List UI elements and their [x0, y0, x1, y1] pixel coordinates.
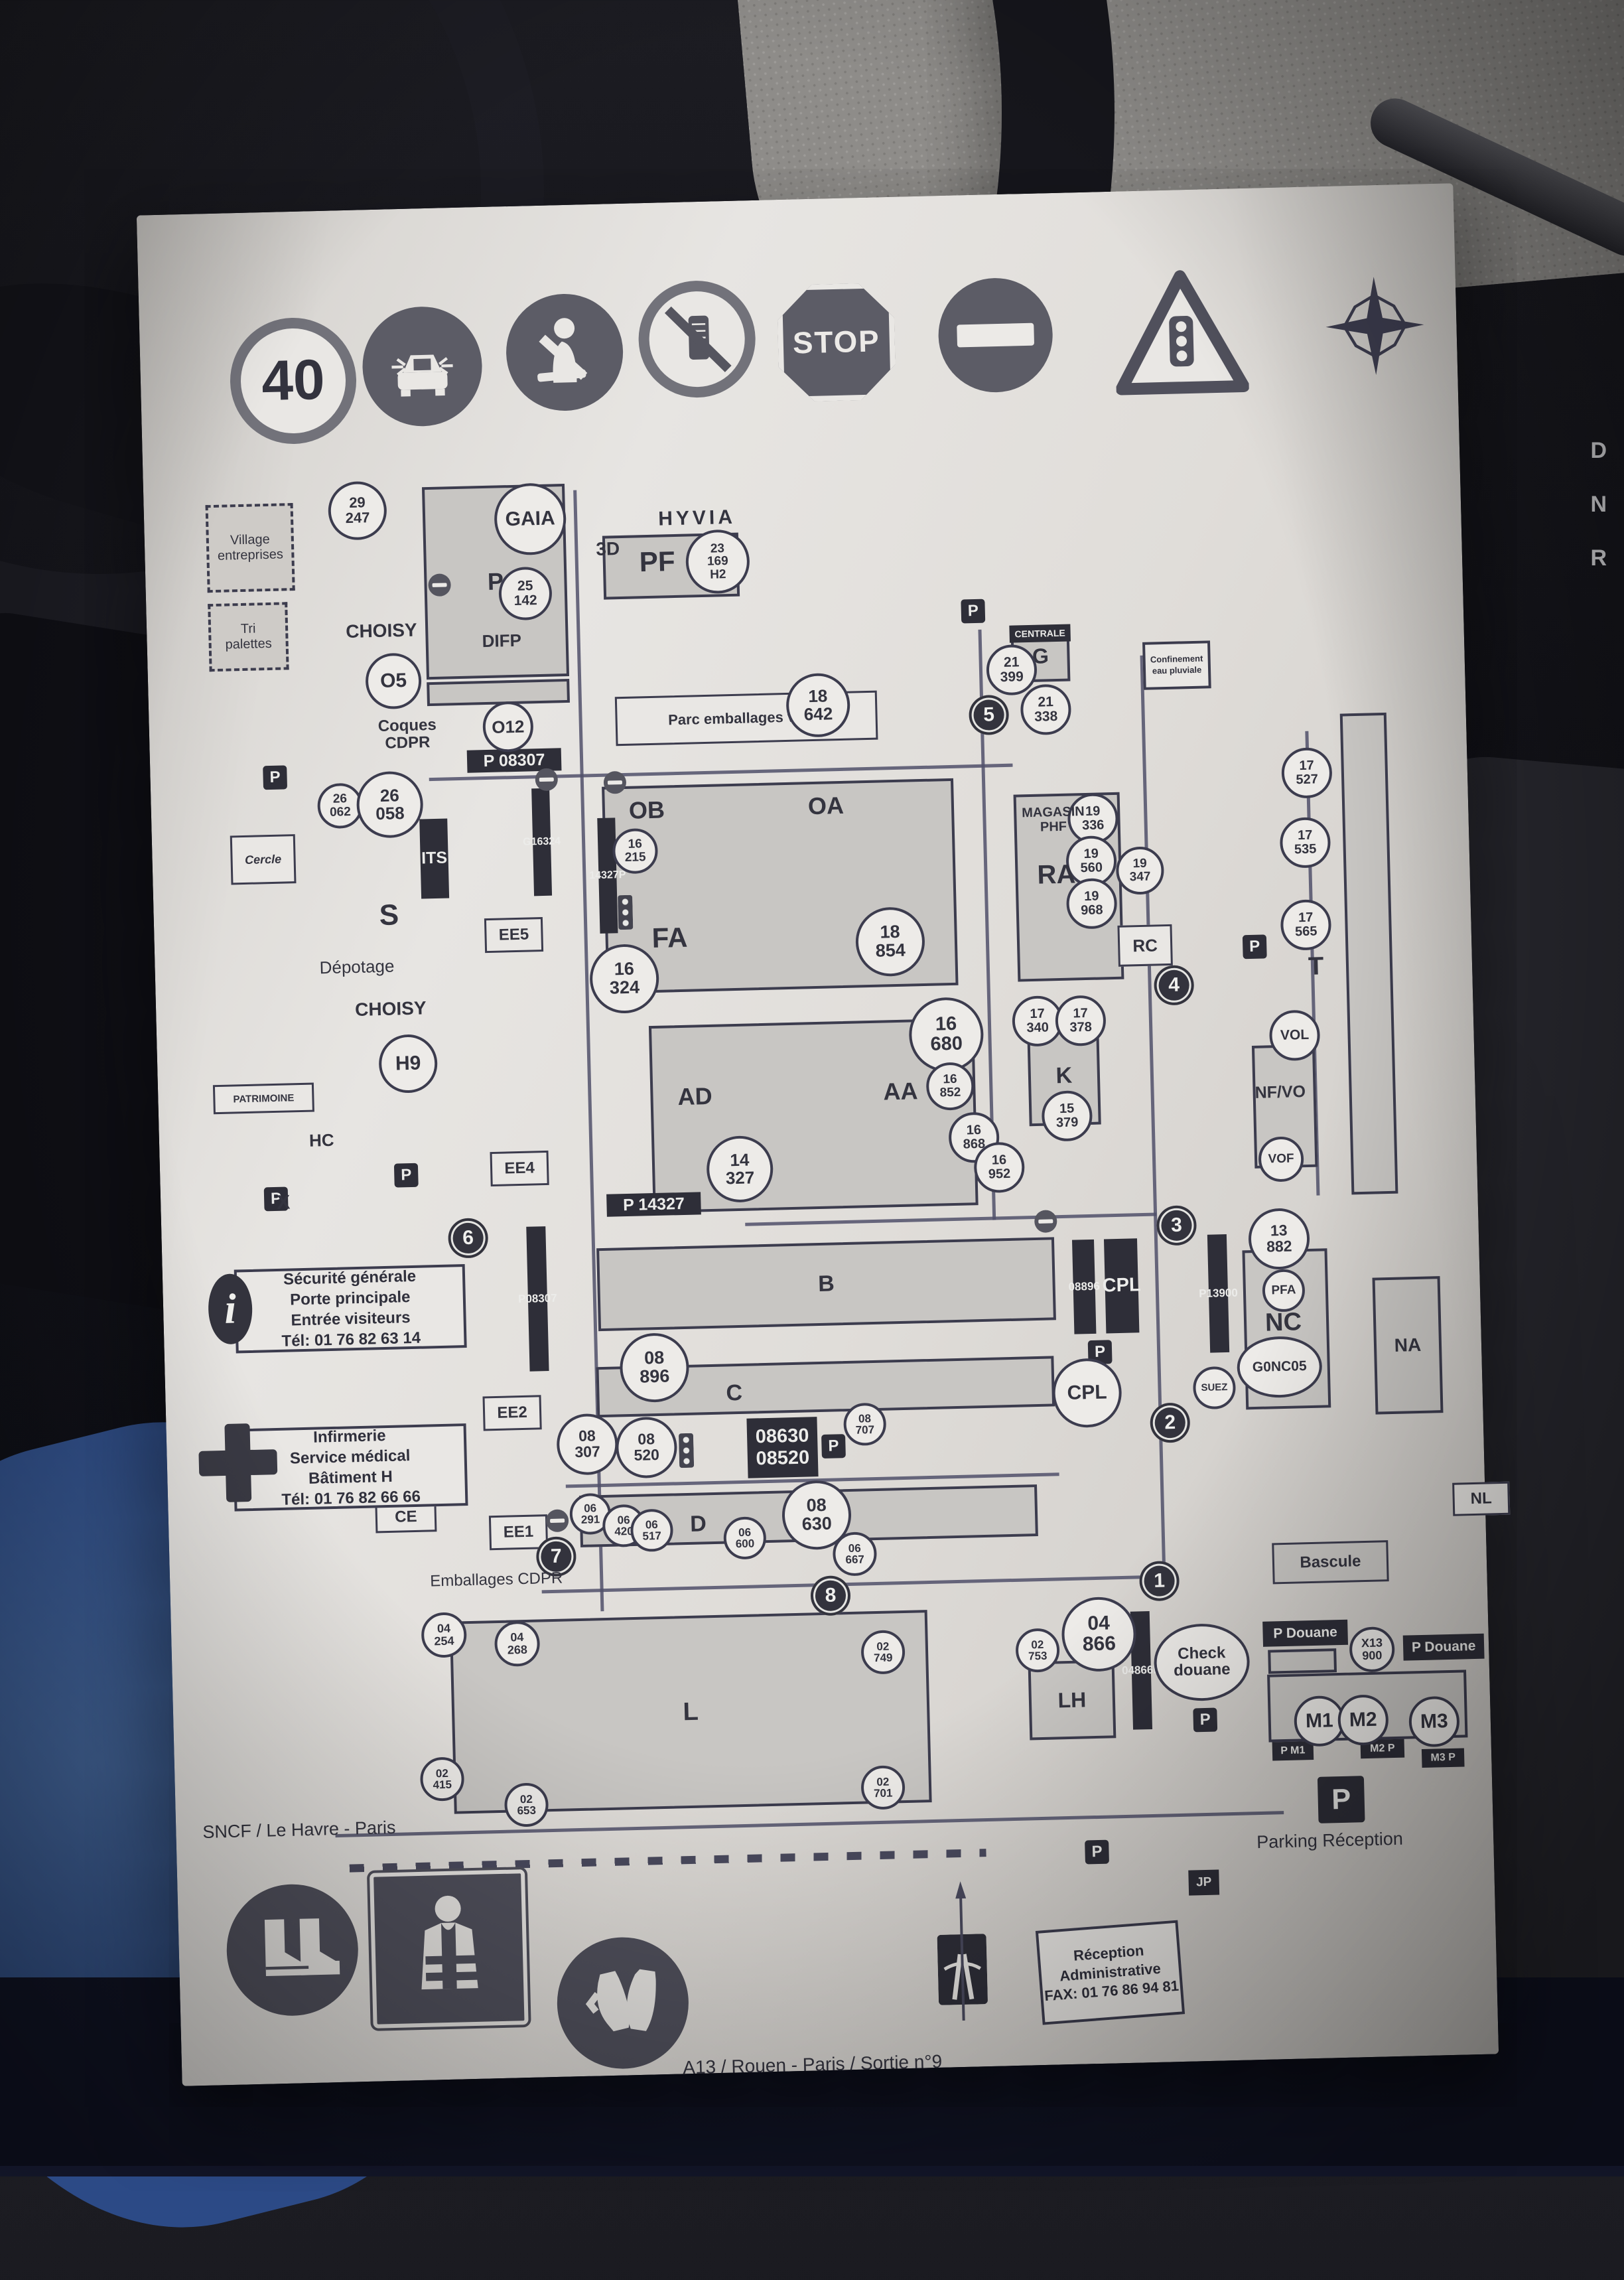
parking-sign: P	[1193, 1708, 1217, 1733]
gear-letter: R	[1590, 545, 1607, 571]
s-zone: S	[379, 899, 399, 932]
room-ee4-label: EE4	[504, 1159, 535, 1178]
coques-cdpr: CoquesCDPR	[377, 717, 437, 753]
label-line: 399	[1000, 670, 1024, 684]
x-zone: X	[277, 1191, 291, 1213]
emballages-cdpr: Emballages CDPR	[430, 1570, 563, 1591]
label-line: 08	[578, 1429, 596, 1445]
no-entry-sign	[937, 277, 1054, 393]
label-line: G0NC05	[1252, 1359, 1307, 1375]
room-ee1-label: EE1	[503, 1523, 533, 1542]
17-527: 17527	[1281, 747, 1333, 799]
label-line: 415	[433, 1779, 452, 1791]
label-line: 142	[513, 593, 537, 608]
room-cercle-label: Cercle	[245, 852, 282, 867]
label-line: 866	[1082, 1634, 1116, 1655]
route-badge-4: 4	[1154, 965, 1194, 1005]
label-line: P 08307	[483, 750, 545, 771]
label-line: Bâtiment H	[308, 1466, 393, 1489]
o12: O12	[482, 701, 534, 752]
label-line: 19	[1084, 890, 1099, 904]
label-line: Entrée visiteurs	[291, 1307, 411, 1331]
label-line: 08630	[755, 1425, 809, 1448]
23-169-h2: 23169H2	[685, 529, 750, 594]
aa: AA	[883, 1078, 918, 1105]
no-entry-icon	[1034, 1210, 1057, 1233]
bldg-lh-label: LH	[1057, 1687, 1087, 1713]
08-307: 08307	[556, 1413, 618, 1476]
security-info: Sécurité généralePorte principaleEntrée …	[234, 1264, 467, 1353]
label-line: 18	[880, 923, 900, 942]
label-line: 06	[848, 1542, 861, 1554]
label-line: JP	[1196, 1875, 1212, 1890]
check-douane: Checkdouane	[1153, 1622, 1251, 1701]
label-line: VOF	[1268, 1153, 1294, 1167]
21-338: 21338	[1020, 683, 1072, 735]
19-347: 19347	[1116, 846, 1165, 895]
x13-900: X13900	[1349, 1626, 1395, 1673]
hazard-lights-sign	[361, 305, 483, 427]
parking-reception: Parking Réception	[1256, 1829, 1403, 1853]
bldg-b: B	[596, 1237, 1056, 1331]
village-entreprises: Villageentreprises	[206, 503, 295, 593]
label-line: 968	[1081, 903, 1103, 917]
label-line: 18	[808, 687, 828, 705]
label-line: 338	[1034, 709, 1058, 724]
02-653: 02653	[504, 1782, 549, 1827]
label-line: Village	[230, 532, 270, 548]
label-line: P Douane	[1412, 1638, 1476, 1656]
cpl-v: CPL	[1104, 1238, 1139, 1333]
railway-track	[350, 1849, 986, 1872]
label-line: palettes	[225, 636, 272, 653]
label-line: M2	[1349, 1709, 1377, 1731]
medical-cross-icon	[198, 1423, 278, 1503]
label-line: 16	[943, 1073, 957, 1086]
room-bascule-label: Bascule	[1300, 1552, 1361, 1572]
label-line: douane	[1174, 1662, 1231, 1679]
label-line: 06	[645, 1519, 658, 1531]
route-badge-2: 2	[1150, 1402, 1190, 1443]
label-line: 347	[1130, 871, 1151, 884]
label-line: 707	[856, 1424, 875, 1436]
traffic-light-warning-sign	[1113, 267, 1249, 403]
road-segment	[542, 1575, 1166, 1593]
08-520: 08520	[615, 1416, 677, 1478]
room-patrimoine-label: PATRIMOINE	[233, 1092, 294, 1105]
parking-sign: P	[1085, 1840, 1109, 1865]
label-line: 15	[1059, 1102, 1075, 1116]
label-line: 02	[876, 1776, 889, 1788]
label-line: Porte principale	[290, 1287, 411, 1311]
gear-indicator: DNR	[1590, 438, 1607, 571]
room-nl: NL	[1452, 1482, 1510, 1516]
label-line: 02	[520, 1793, 533, 1805]
bldg-choisy	[427, 679, 570, 706]
no-mobile-phone-sign	[638, 279, 757, 399]
label-line: 16	[614, 960, 634, 979]
hyvia: HYVIA	[658, 506, 736, 530]
gear-letter: N	[1590, 492, 1607, 518]
label-line: 19	[1085, 805, 1101, 819]
label-line: 254	[434, 1635, 454, 1648]
label-line: VOL	[1280, 1028, 1310, 1043]
parking-sign: P	[263, 765, 287, 790]
sncf-line: SNCF / Le Havre - Paris	[202, 1818, 396, 1843]
choisy-north: CHOISY	[346, 620, 417, 642]
label-line: 25	[517, 579, 533, 594]
label-line: Tri	[241, 621, 256, 637]
label-line: 268	[507, 1644, 527, 1656]
label-line: 06	[617, 1514, 630, 1526]
gloves-icon	[555, 1936, 690, 2070]
label-line: 06	[738, 1526, 751, 1538]
label-line: 291	[581, 1514, 600, 1526]
room-rc-label: RC	[1132, 935, 1158, 956]
02-701: 02701	[860, 1765, 906, 1810]
route-badge-3: 3	[1156, 1205, 1197, 1246]
label-line: 378	[1069, 1021, 1092, 1034]
label-line: M1	[1306, 1711, 1333, 1732]
cpl-circle: CPL	[1051, 1358, 1122, 1429]
label-line: 565	[1295, 925, 1318, 939]
label-line: 058	[375, 804, 405, 823]
bldg-t	[1340, 713, 1398, 1194]
o5: O5	[365, 652, 422, 709]
label-line: 17	[1030, 1007, 1045, 1021]
vof: VOF	[1258, 1136, 1304, 1182]
label-line: 08	[638, 1431, 655, 1447]
label-line: Confinement	[1150, 654, 1203, 666]
label-line: 852	[939, 1086, 961, 1100]
p14327-banner: P 14327	[606, 1192, 701, 1216]
label-line: 06	[584, 1502, 596, 1514]
label-line: 08	[858, 1413, 871, 1425]
label-line: M3 P	[1430, 1752, 1455, 1764]
parking-sign: P	[961, 599, 985, 624]
label-line: 642	[803, 705, 833, 723]
site-map-paper: PBLKNALHGEE5EE4EE2EE1CERCCerclePATRIMOIN…	[137, 183, 1499, 2086]
pm1-label: P M1	[1272, 1741, 1314, 1761]
oa: OA	[807, 792, 844, 819]
label-line: 169	[707, 555, 728, 568]
p08307-v: P08307	[526, 1226, 549, 1372]
h9: H9	[378, 1034, 438, 1094]
label-line: eau pluviale	[1152, 665, 1202, 677]
ad: AD	[677, 1083, 712, 1110]
jp-box: JP	[1188, 1870, 1219, 1896]
label-line: 667	[845, 1553, 864, 1565]
label-line: 02	[436, 1767, 448, 1779]
label-line: 600	[736, 1538, 755, 1550]
label-line: X13	[1361, 1637, 1383, 1650]
cross-bar-h	[198, 1449, 277, 1476]
label-line: 23	[710, 542, 725, 555]
label-line: 535	[1294, 843, 1317, 857]
label-line: CPL	[1067, 1382, 1107, 1403]
room-ee2-label: EE2	[497, 1403, 527, 1423]
label-line: PFA	[1271, 1284, 1296, 1297]
fa: FA	[651, 922, 688, 954]
label-line: 560	[1080, 861, 1103, 875]
label-line: H2	[710, 568, 726, 581]
label-line: 882	[1266, 1239, 1292, 1255]
label-line: O12	[492, 717, 525, 736]
m3p-label: M3 P	[1422, 1748, 1465, 1768]
label-line: 340	[1026, 1021, 1049, 1034]
15-379: 15379	[1042, 1090, 1093, 1142]
label-line: P Douane	[1273, 1624, 1337, 1642]
no-entry-icon	[546, 1509, 569, 1532]
label-line: 215	[625, 851, 646, 864]
label-line: 26	[333, 793, 348, 806]
label-line: 753	[1028, 1650, 1048, 1662]
label-line: 08	[806, 1496, 827, 1516]
room-ee5-label: EE5	[498, 926, 529, 945]
hc: HC	[309, 1131, 334, 1151]
label-line: entreprises	[218, 547, 283, 563]
label-line: MAGASIN	[1022, 804, 1085, 820]
label-line: 900	[1362, 1649, 1382, 1662]
t-zone: T	[1308, 953, 1324, 981]
choisy-south: CHOISY	[355, 998, 427, 1020]
difp: DIFP	[482, 631, 521, 651]
label-line: 749	[874, 1652, 893, 1664]
label-line: 653	[517, 1805, 536, 1817]
label-line: 854	[875, 942, 906, 961]
label-line: 19	[1132, 857, 1147, 871]
label-line: O5	[380, 670, 407, 691]
17-565: 17565	[1280, 899, 1332, 951]
road-segment	[336, 1811, 1284, 1837]
label-line: 14	[730, 1151, 750, 1169]
06-517: 06517	[630, 1509, 674, 1553]
stop-sign: STOP	[777, 283, 896, 402]
label-line: Sécurité générale	[283, 1265, 417, 1289]
label-line: 379	[1056, 1115, 1079, 1129]
bldg-k-label: K	[1055, 1062, 1073, 1089]
m3: M3	[1408, 1696, 1460, 1748]
parking-sign: P	[394, 1163, 419, 1188]
label-line: 327	[726, 1169, 755, 1187]
bldg-l-label: L	[683, 1697, 699, 1727]
road-segment	[745, 1213, 1156, 1226]
06-667: 06667	[833, 1532, 878, 1577]
label-line: Tél: 01 76 82 63 14	[281, 1328, 421, 1352]
label-line: GAIA	[505, 508, 555, 530]
p13900-v: P13900	[1207, 1234, 1229, 1353]
route-badge-1: 1	[1139, 1561, 1180, 1601]
29-247: 29247	[328, 481, 387, 541]
tri-palettes: Tripalettes	[208, 602, 289, 672]
route-badge-6: 6	[448, 1218, 488, 1258]
ob: OB	[628, 796, 665, 823]
label-line: 062	[330, 806, 351, 819]
boots-icon	[225, 1883, 360, 2017]
label-line: 17	[1073, 1007, 1088, 1021]
depotage: Dépotage	[319, 957, 394, 977]
label-line: 02	[876, 1640, 889, 1652]
label-line: 307	[575, 1444, 600, 1461]
traffic-light-icon	[618, 895, 633, 930]
traffic-light-icon	[679, 1433, 694, 1468]
g16324-v: G16324	[531, 788, 552, 896]
label-line: 952	[988, 1167, 1011, 1181]
label-line: 17	[1298, 829, 1313, 843]
label-line: 04	[510, 1632, 523, 1644]
bldg-na-label: NA	[1394, 1334, 1421, 1356]
label-line: 13	[1270, 1223, 1288, 1239]
label-line: CENTRALE	[1014, 628, 1065, 640]
label-line: 26	[380, 786, 400, 804]
confinement-box: Confinementeau pluviale	[1142, 640, 1211, 689]
nc: NC	[1265, 1309, 1302, 1337]
label-line: 16	[935, 1015, 957, 1035]
label-line: 630	[801, 1515, 832, 1534]
room-rc: RC	[1117, 924, 1172, 967]
room-ee5: EE5	[484, 917, 543, 953]
c-row: C	[726, 1381, 742, 1406]
seatbelt-sign	[505, 293, 624, 412]
road-segment	[1140, 656, 1166, 1581]
route-badge-8: 8	[810, 1575, 850, 1616]
label-line: 02	[1031, 1638, 1044, 1650]
label-line: 520	[634, 1447, 659, 1464]
label-line: 16	[967, 1123, 982, 1137]
label-line: SUEZ	[1201, 1382, 1227, 1393]
label-line: 21	[1038, 695, 1053, 710]
label-line: Tél: 01 76 82 66 66	[281, 1486, 421, 1510]
label-line: 324	[610, 978, 640, 997]
centrale-banner: CENTRALE	[1009, 624, 1071, 642]
label-line: CDPR	[378, 734, 437, 753]
bldg-douane	[1268, 1648, 1337, 1674]
17-535: 17535	[1280, 817, 1331, 869]
safety-vest-icon	[370, 1869, 529, 2029]
room-ee2: EE2	[482, 1395, 541, 1431]
room-patrimoine: PATRIMOINE	[213, 1083, 314, 1115]
route-badge-5: 5	[969, 695, 1009, 735]
21-399: 21399	[986, 644, 1038, 696]
label-line: 21	[1004, 656, 1020, 670]
label-line: 517	[642, 1530, 661, 1542]
label-line: 336	[1082, 818, 1105, 832]
label-line: 08	[644, 1349, 665, 1368]
label-line: 04	[1087, 1614, 1110, 1635]
compass-rose-icon	[1325, 275, 1426, 376]
08896-v: 08896	[1072, 1240, 1096, 1334]
label-line: 08520	[756, 1447, 809, 1470]
label-line: Coques	[377, 717, 437, 736]
label-line: M2 P	[1370, 1743, 1395, 1755]
no-entry-icon	[535, 768, 558, 791]
label-line: P 14327	[623, 1194, 685, 1215]
14327p-v: 14327P	[597, 818, 618, 934]
label-line: 16	[992, 1153, 1007, 1167]
label-line: M3	[1420, 1711, 1448, 1733]
label-line: P M1	[1280, 1745, 1306, 1757]
label-line: 247	[345, 510, 370, 526]
label-line: 527	[1296, 772, 1318, 786]
room-ce-label: CE	[395, 1508, 417, 1527]
06-600: 06600	[723, 1516, 767, 1560]
parking-reception-p: P	[1318, 1776, 1365, 1823]
threed: 3D	[596, 539, 620, 560]
magasin-phf: MAGASINPHF	[1022, 804, 1085, 835]
16-952: 16952	[973, 1141, 1025, 1193]
douane-left: P Douane	[1262, 1620, 1348, 1647]
bldg-b-label: B	[818, 1271, 835, 1297]
label-line: 19	[1083, 847, 1099, 861]
label-line: Service médical	[290, 1445, 411, 1469]
silo-08630-08520: 0863008520	[746, 1417, 818, 1478]
bldg-na: NA	[1373, 1276, 1444, 1414]
ra: RA	[1037, 859, 1076, 889]
08-707: 08707	[843, 1403, 887, 1447]
label-line: Infirmerie	[313, 1425, 386, 1448]
room-ee4: EE4	[490, 1151, 549, 1186]
douane-right: P Douane	[1403, 1634, 1485, 1661]
label-line: H9	[395, 1053, 421, 1074]
room-nl-label: NL	[1470, 1489, 1492, 1508]
d-row: D	[690, 1512, 707, 1537]
suez: SUEZ	[1193, 1366, 1237, 1410]
no-entry-bar	[957, 322, 1035, 347]
room-bascule: Bascule	[1272, 1540, 1388, 1584]
speed-limit-40-sign: 40	[229, 317, 358, 446]
label-line: PHF	[1022, 819, 1085, 835]
its-v: ITS	[419, 818, 449, 898]
room-cercle: Cercle	[230, 834, 297, 885]
pf: PF	[639, 546, 675, 577]
label-line: 680	[930, 1034, 963, 1055]
gear-letter: D	[1590, 438, 1607, 464]
label-line: 17	[1298, 911, 1314, 925]
nfvo: NF/VO	[1254, 1083, 1306, 1102]
16-324: 16324	[589, 944, 660, 1015]
parking-sign: P	[1243, 934, 1267, 959]
label-line: 17	[1299, 759, 1314, 773]
label-line: 04	[437, 1622, 450, 1635]
label-line: 701	[874, 1788, 893, 1800]
26-058: 26058	[356, 770, 423, 838]
reception-admin: RéceptionAdministrativeFAX: 01 76 86 94 …	[1036, 1920, 1185, 2025]
label-line: 896	[640, 1368, 670, 1387]
label-line: 16	[628, 838, 642, 851]
parking-sign: P	[821, 1434, 846, 1459]
